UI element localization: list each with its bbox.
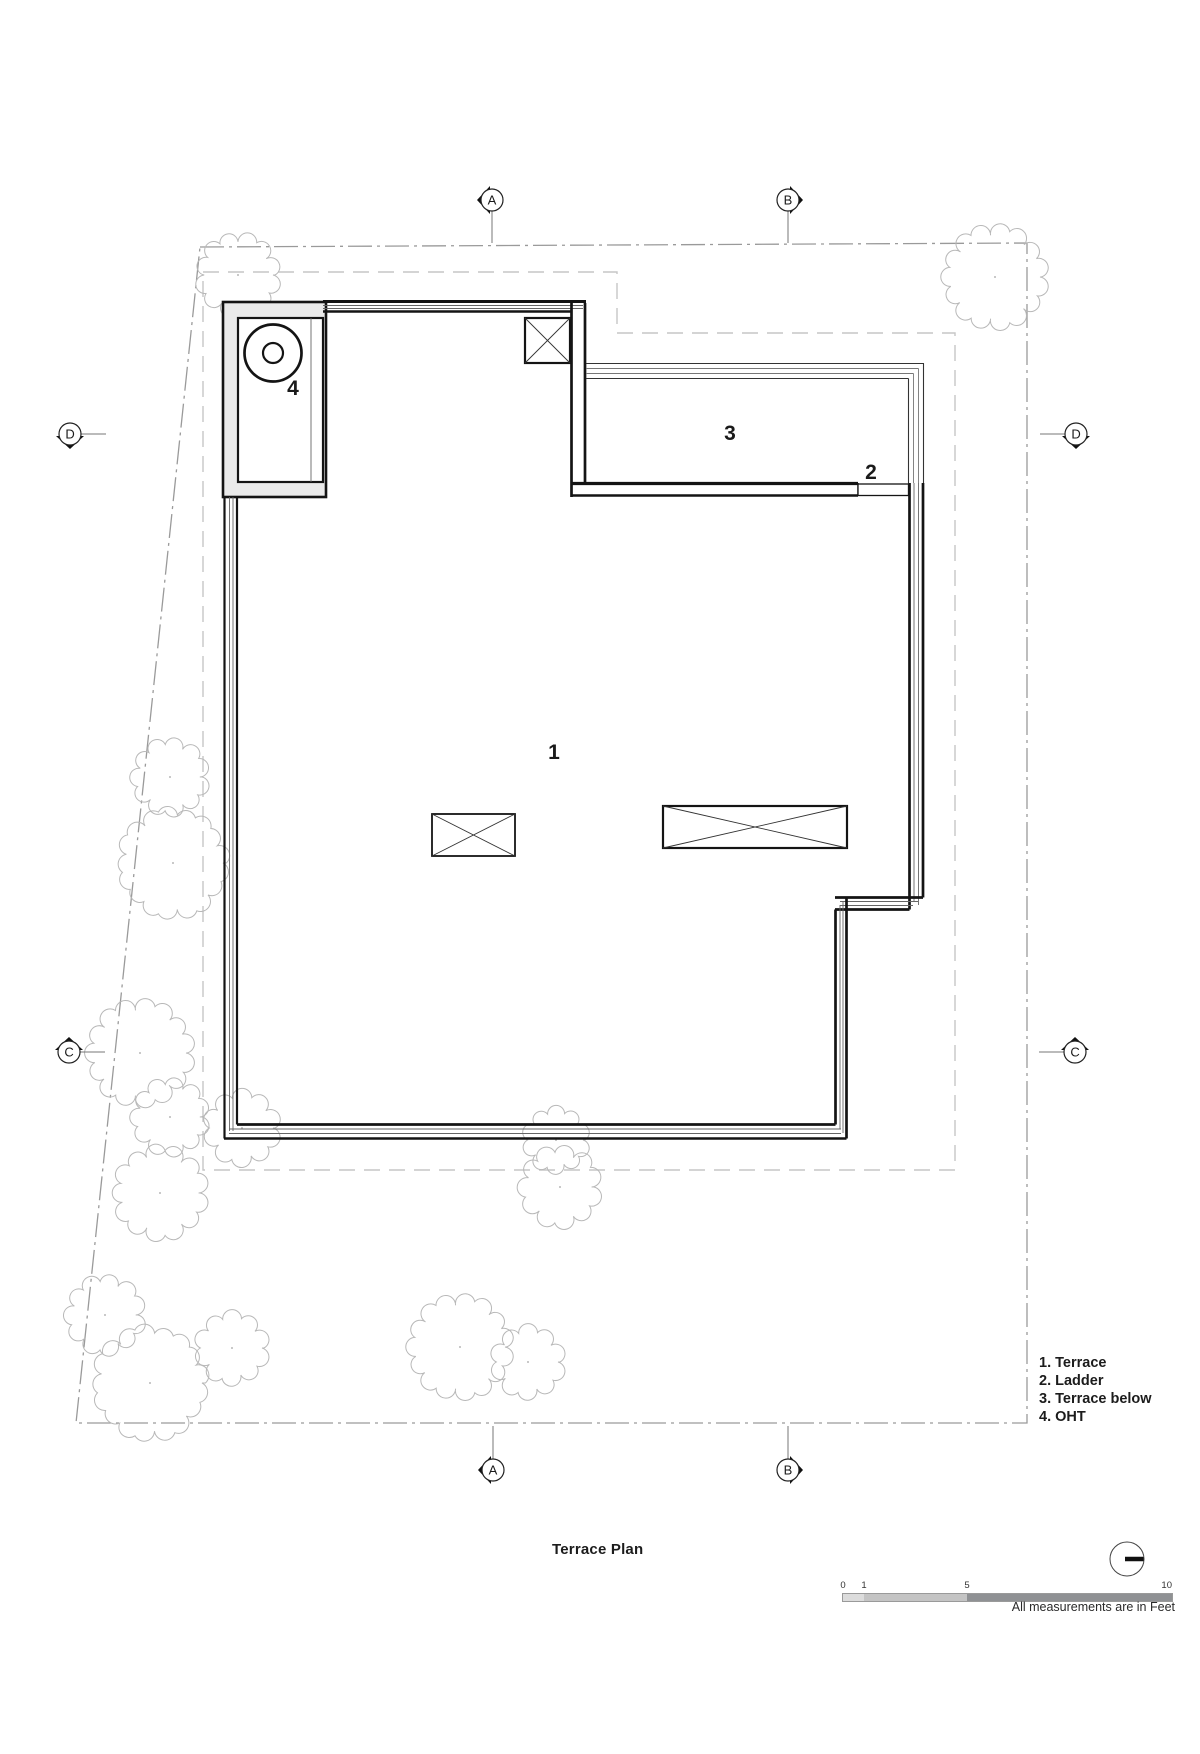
- grid-marker-c-left: C: [55, 1037, 105, 1063]
- grid-marker-letter: B: [784, 1463, 793, 1478]
- crossed-box-large: [663, 806, 847, 848]
- grid-marker-c-right: C: [1039, 1037, 1089, 1063]
- grid-marker-b-bottom: B: [777, 1426, 803, 1484]
- grid-marker-letter: B: [784, 193, 793, 208]
- grid-marker-letter: A: [488, 193, 497, 208]
- grid-marker-a-top: A: [477, 186, 503, 243]
- south-parapet-wall: [224, 1125, 847, 1139]
- grid-marker-letter: C: [64, 1045, 73, 1060]
- legend-item: 4. OHT: [1039, 1408, 1152, 1426]
- tree-icon: [130, 738, 209, 817]
- grid-marker-a-bottom: A: [478, 1426, 504, 1484]
- tree-icon: [517, 1145, 601, 1229]
- label-ladder: 2: [865, 461, 877, 484]
- oht-block: [223, 302, 326, 497]
- grid-marker-letter: D: [65, 427, 74, 442]
- measurement-note: All measurements are in Feet: [1012, 1600, 1175, 1614]
- label-terrace: 1: [548, 741, 560, 764]
- grid-marker-d-right: D: [1040, 423, 1090, 449]
- tree-icon: [130, 1078, 209, 1157]
- grid-marker-d-left: D: [56, 423, 106, 449]
- grid-marker-letter: A: [489, 1463, 498, 1478]
- scale-tick-label: 1: [861, 1580, 866, 1591]
- grid-marker-b-top: B: [777, 186, 803, 243]
- grid-marker-letter: C: [1070, 1045, 1079, 1060]
- scale-tick-label: 0: [840, 1580, 845, 1591]
- terrace-below-south-wall: [571, 483, 858, 496]
- scale-tick-label: 5: [964, 1580, 969, 1591]
- scale-tick-label: 10: [1161, 1580, 1172, 1591]
- tree-icon: [204, 1088, 281, 1167]
- tree-icon: [523, 1105, 590, 1174]
- legend-item: 2. Ladder: [1039, 1372, 1152, 1390]
- scale-bar-segment: [843, 1594, 864, 1601]
- crossed-box-top: [525, 318, 570, 363]
- tree-icon: [406, 1294, 513, 1401]
- notch-walls: [835, 898, 923, 1139]
- tree-icon: [941, 224, 1048, 331]
- scale-bar-segment: [864, 1594, 967, 1601]
- tree-icon: [491, 1324, 565, 1401]
- top-parapet-wall: [323, 302, 586, 312]
- tree-icon: [112, 1144, 208, 1241]
- tree-icon: [195, 1310, 269, 1387]
- crossed-box-small: [432, 814, 515, 856]
- tree-icon: [64, 1275, 146, 1356]
- terrace-plan-drawing: 1 2 3 4 ABDDCCAB: [0, 0, 1200, 1754]
- upper-east-wall: [572, 301, 586, 497]
- label-oht: 4: [287, 377, 299, 400]
- legend-item: 3. Terrace below: [1039, 1390, 1152, 1408]
- tree-icon: [85, 999, 195, 1108]
- east-parapet-wall: [910, 483, 924, 910]
- label-terrace-below: 3: [724, 422, 736, 445]
- legend-item: 1. Terrace: [1039, 1354, 1152, 1372]
- ladder-symbol: [858, 484, 909, 496]
- drawing-title: Terrace Plan: [552, 1541, 643, 1558]
- trees-layer: [64, 224, 1049, 1441]
- legend: 1. Terrace 2. Ladder 3. Terrace below 4.…: [1039, 1354, 1152, 1426]
- grid-marker-letter: D: [1071, 427, 1080, 442]
- north-indicator-icon: [1110, 1542, 1144, 1576]
- west-parapet-wall: [225, 497, 238, 1139]
